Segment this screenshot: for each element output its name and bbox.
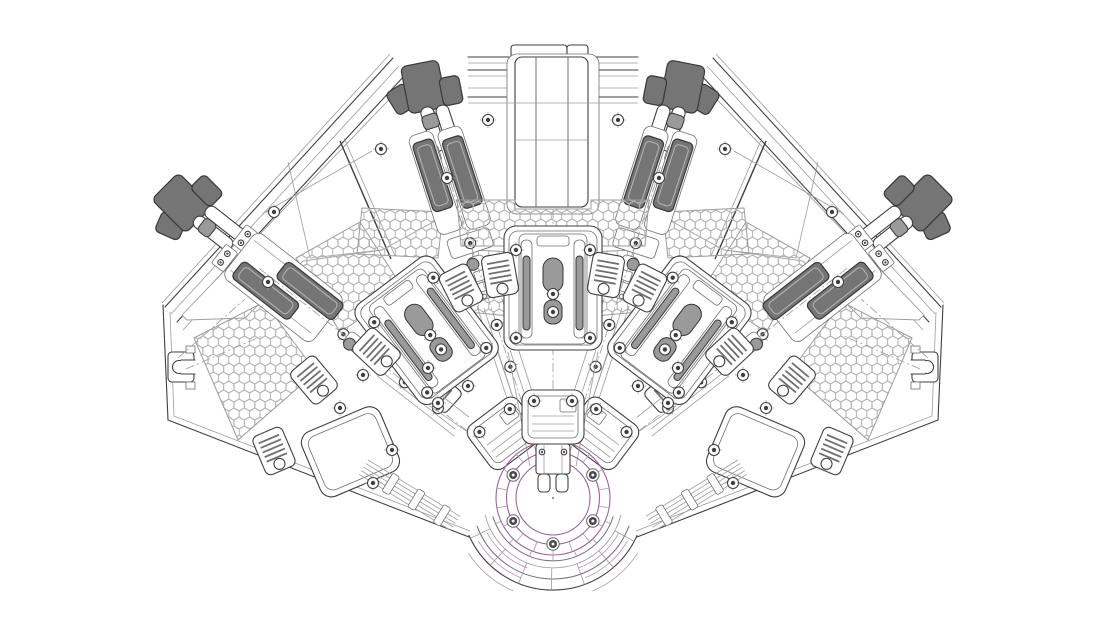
hub-bolt	[587, 469, 599, 481]
hub-bolt	[547, 538, 559, 550]
hub-bolt	[507, 469, 519, 481]
hub-bolt	[507, 515, 519, 527]
hub-bolt	[587, 515, 599, 527]
center-column-panel	[507, 54, 599, 214]
cad-drawing	[0, 0, 1100, 619]
drawing-canvas	[0, 0, 1100, 619]
central-neck	[536, 444, 570, 492]
